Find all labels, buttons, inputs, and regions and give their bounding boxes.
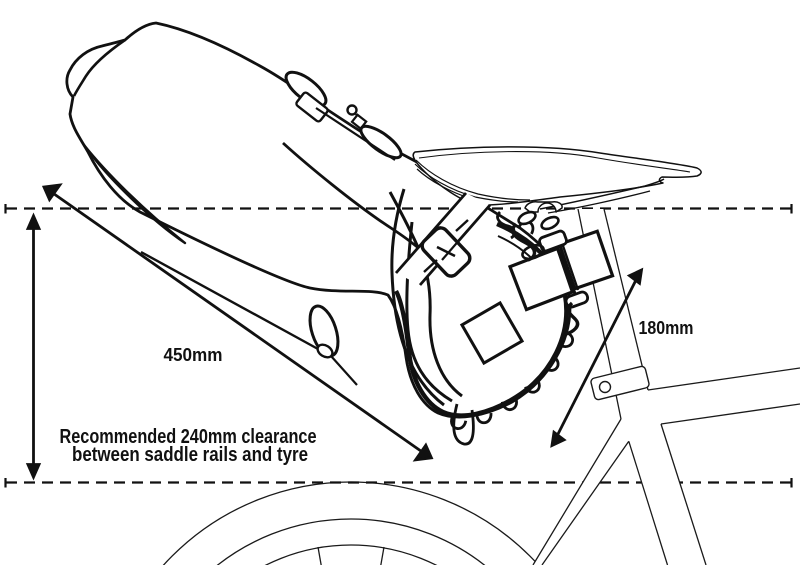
svg-text:450mm: 450mm bbox=[164, 344, 223, 365]
svg-text:between saddle rails and tyre: between saddle rails and tyre bbox=[72, 444, 308, 466]
svg-text:180mm: 180mm bbox=[639, 317, 694, 338]
